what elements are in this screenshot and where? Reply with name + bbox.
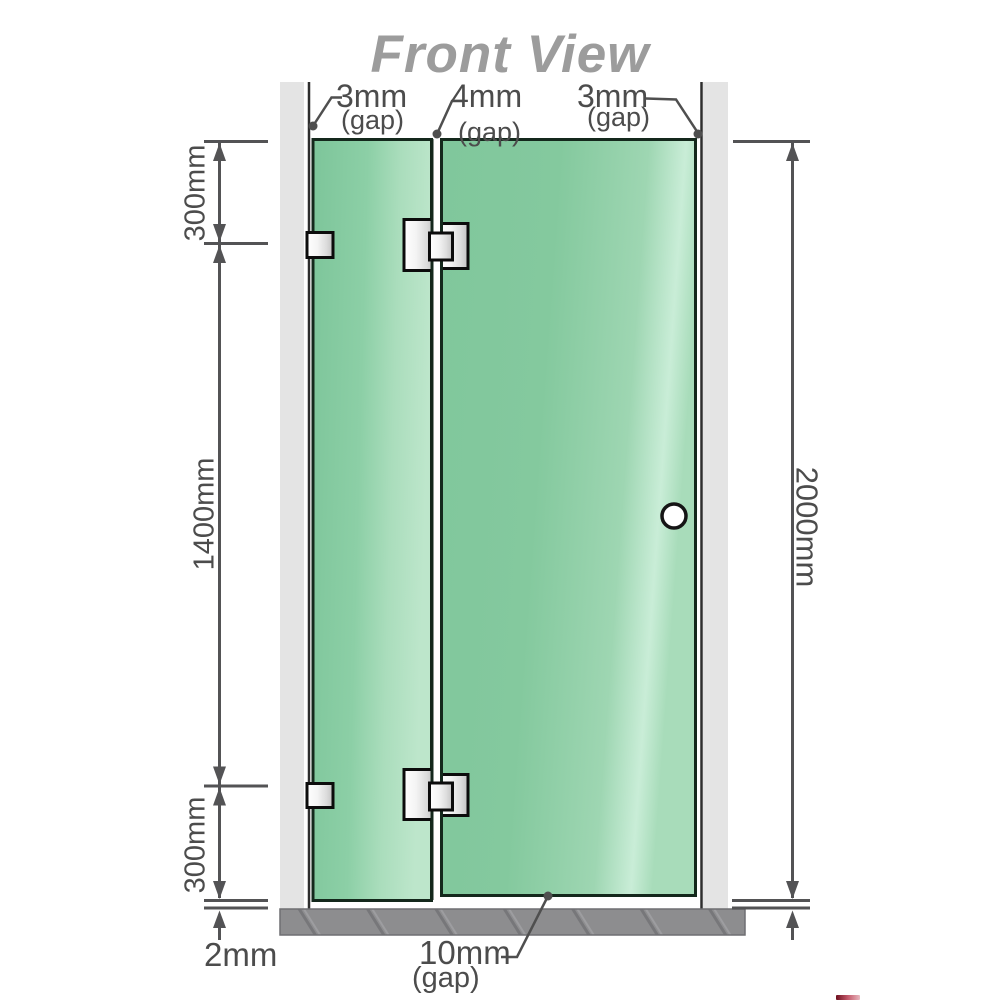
- door-panel-glass: [442, 140, 696, 896]
- cropped-logo-fragment: [836, 995, 860, 1000]
- floor-gap-label: 2mm: [204, 938, 277, 971]
- floor: [280, 909, 745, 935]
- left-wall: [280, 82, 309, 910]
- diagram-title: Front View: [358, 24, 662, 85]
- hinge-top-connector: [430, 233, 453, 260]
- door-knob: [662, 504, 686, 528]
- right-wall: [702, 82, 729, 910]
- gap-label-top-center-unit: (gap): [458, 119, 521, 146]
- wall-bracket-bottom: [307, 784, 333, 808]
- wall-bracket-top: [307, 233, 333, 258]
- gap-label-top-left-unit: (gap): [341, 107, 404, 134]
- dimension-label-left-top: 300mm: [182, 145, 211, 242]
- gap-label-top-right-unit: (gap): [587, 104, 650, 131]
- gap-label-top-center-value: 4mm: [451, 80, 522, 112]
- diagram-canvas: Front View 3mm (gap) 4mm (gap) 3mm (gap)…: [0, 0, 1000, 1000]
- hinge-bottom-connector: [430, 783, 453, 810]
- dimension-label-left-middle: 1400mm: [191, 458, 220, 571]
- diagram-geometry: [0, 0, 1000, 1000]
- dimension-label-left-bottom: 300mm: [182, 797, 211, 894]
- dimension-label-right: 2000mm: [792, 467, 823, 588]
- door-gap-label-unit: (gap): [412, 964, 480, 993]
